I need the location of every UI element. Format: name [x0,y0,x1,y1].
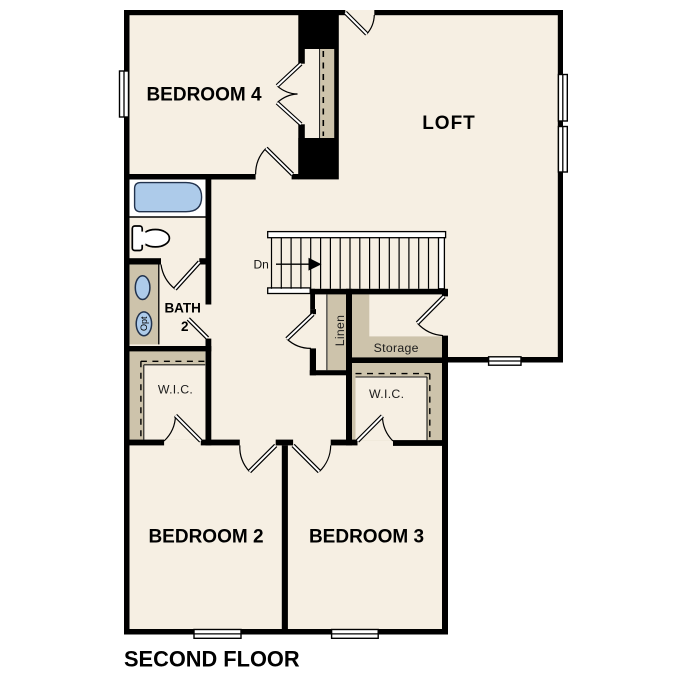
svg-text:W.I.C.: W.I.C. [369,387,404,401]
svg-text:W.I.C.: W.I.C. [158,383,193,397]
svg-text:BEDROOM 4: BEDROOM 4 [146,85,262,106]
svg-text:2: 2 [181,319,189,334]
svg-text:Opt: Opt [139,316,149,331]
svg-text:SECOND FLOOR: SECOND FLOOR [124,647,300,672]
svg-text:BEDROOM 2: BEDROOM 2 [148,527,263,548]
svg-text:Dn: Dn [254,257,269,271]
svg-text:LOFT: LOFT [422,113,476,134]
svg-text:BATH: BATH [164,300,201,315]
svg-text:Storage: Storage [374,341,419,355]
svg-text:Linen: Linen [333,315,347,347]
svg-text:BEDROOM 3: BEDROOM 3 [309,527,424,548]
